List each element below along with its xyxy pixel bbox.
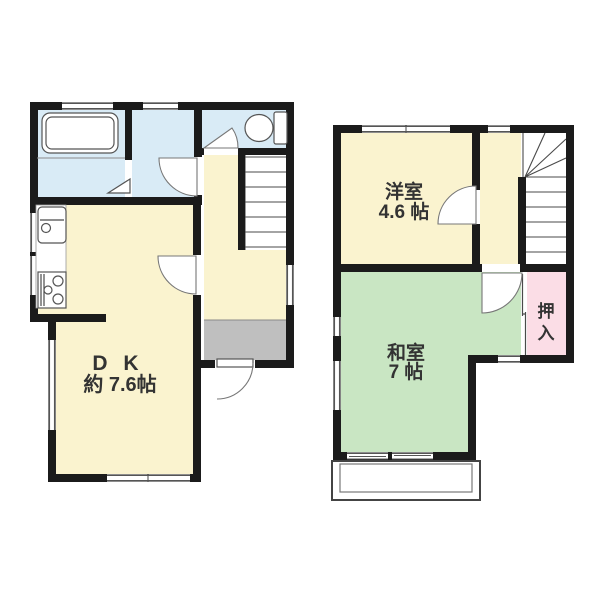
toilet-door-opening	[204, 148, 238, 155]
closet-label-char1: 押	[538, 301, 555, 321]
toilet-icon	[245, 112, 287, 144]
window-left-dk	[49, 340, 56, 430]
closet-sliding-door-icon	[523, 274, 526, 355]
kitchen-counter	[36, 205, 66, 308]
dk-room-label: D K	[92, 352, 143, 375]
window-top-western	[362, 126, 450, 134]
japanese-room-label: 和室	[387, 341, 425, 364]
japanese-room-size: 7 帖	[389, 360, 424, 383]
balcony-icon	[332, 461, 480, 500]
japanese-door-opening	[482, 264, 520, 272]
kitchen-sink-icon	[38, 207, 66, 243]
western-room-size: 4.6 帖	[379, 200, 430, 223]
window-right-hall	[287, 265, 294, 305]
floor-plan-1f: D K 約 7.6帖	[30, 102, 294, 482]
room-entry-genkan	[204, 320, 286, 360]
window-balcony-door-1	[347, 453, 388, 460]
window-bottom-dk	[107, 475, 190, 483]
closet-label-char2: 入	[538, 324, 555, 343]
window-left-japanese-1	[334, 317, 341, 336]
window-bottom-closet-wall	[498, 356, 520, 363]
floor-plan-2f: 洋室 4.6 帖 和室 7 帖 押 入	[332, 125, 574, 500]
floorplan-image: D K 約 7.6帖	[0, 0, 600, 600]
window-top-hall	[488, 126, 510, 133]
room-upper-hall	[480, 133, 521, 264]
western-room-label: 洋室	[385, 180, 423, 203]
gas-stove-icon	[38, 272, 66, 308]
window-top-bath	[62, 103, 113, 110]
stairs-area-2f	[521, 133, 566, 264]
window-left-japanese-2	[334, 361, 341, 410]
window-balcony-door-2	[392, 453, 433, 460]
floorplan-svg: D K 約 7.6帖	[0, 0, 600, 600]
entry-door-icon	[217, 359, 253, 399]
dk-room-size: 約 7.6帖	[83, 372, 156, 396]
window-top-washroom	[143, 103, 178, 110]
